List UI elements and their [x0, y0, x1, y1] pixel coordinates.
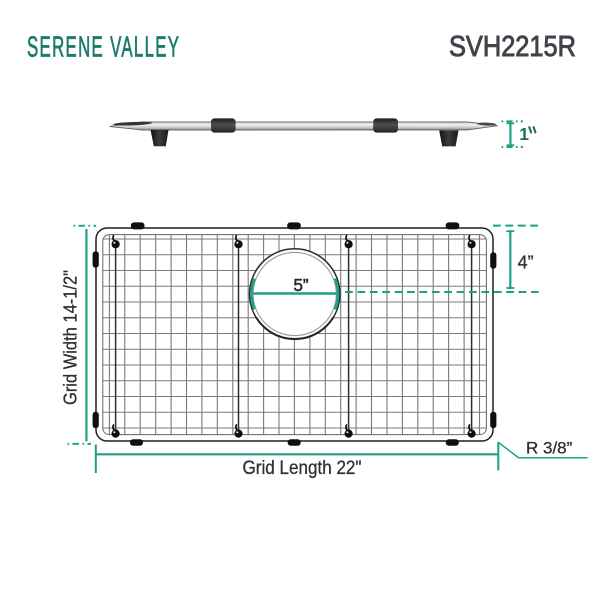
svg-text:R 3/8”: R 3/8”	[526, 439, 573, 458]
svg-text:1: 1	[519, 124, 529, 144]
svg-text:SERENE VALLEY: SERENE VALLEY	[27, 31, 179, 63]
svg-text:4”: 4”	[518, 253, 534, 273]
svg-text:Grid Length 22": Grid Length 22"	[243, 458, 362, 479]
svg-text:Grid Width 14-1/2": Grid Width 14-1/2"	[60, 270, 81, 405]
svg-text:SVH2215R: SVH2215R	[449, 31, 576, 63]
svg-text:5”: 5”	[293, 275, 309, 295]
